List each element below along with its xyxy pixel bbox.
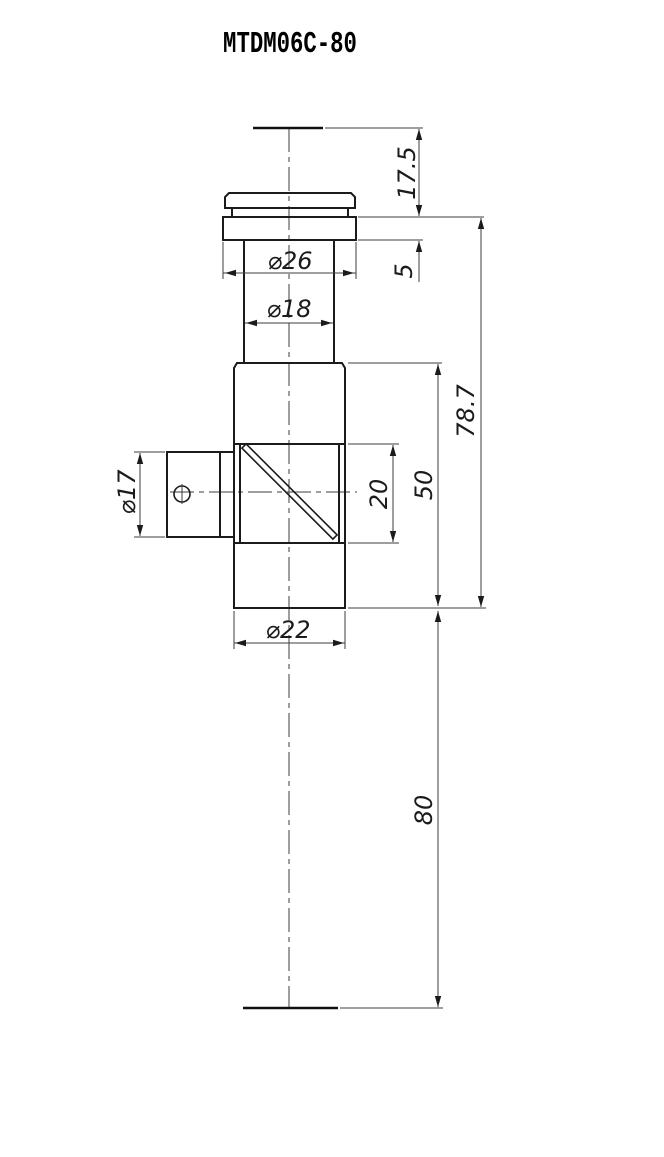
arrow-up-icon xyxy=(478,218,484,229)
dim-label-d18: ⌀18 xyxy=(267,295,312,323)
arrow-left-icon xyxy=(246,320,257,326)
arrow-down-icon xyxy=(416,205,422,216)
dim-label-d22: ⌀22 xyxy=(266,616,311,644)
dimension-window-height: 20 xyxy=(365,445,396,542)
arrow-right-icon xyxy=(321,320,332,326)
dimension-block-diameter: ⌀22 xyxy=(234,616,345,646)
dim-label-d17: ⌀17 xyxy=(113,469,141,515)
arrow-down-icon xyxy=(137,525,143,536)
dim-label-78-7: 78.7 xyxy=(452,384,480,438)
arrow-up-icon xyxy=(435,364,441,375)
arrow-left-icon xyxy=(225,270,236,276)
dimension-top-section-height: 17.5 xyxy=(393,129,422,216)
dim-label-80: 80 xyxy=(410,795,438,826)
arrow-up-icon xyxy=(416,129,422,140)
cap-neck xyxy=(232,208,348,217)
technical-drawing: MTDM06C-80 xyxy=(0,0,664,1157)
arrow-right-icon xyxy=(343,270,354,276)
retaining-cap xyxy=(225,193,355,208)
arrow-up-icon xyxy=(416,241,422,252)
title-block: MTDM06C-80 xyxy=(223,28,357,62)
side-port xyxy=(167,452,234,537)
dim-label-20: 20 xyxy=(365,479,393,510)
arrow-right-icon xyxy=(333,640,344,646)
dimension-block-height: 50 xyxy=(410,364,441,606)
arrow-down-icon xyxy=(435,595,441,606)
dimension-overall-body-height: 78.7 xyxy=(452,218,484,607)
dim-label-17-5: 17.5 xyxy=(393,146,421,199)
arrow-up-icon xyxy=(435,611,441,622)
dimension-side-port-diameter: ⌀17 xyxy=(113,453,143,536)
drawing-title: MTDM06C-80 xyxy=(223,28,357,62)
arrow-left-icon xyxy=(235,640,246,646)
dimension-flange-thickness: 5 xyxy=(390,241,422,282)
dim-label-5: 5 xyxy=(390,263,418,278)
dimension-upper-body-diameter: ⌀18 xyxy=(245,295,333,326)
arrow-up-icon xyxy=(390,445,396,456)
arrow-down-icon xyxy=(390,531,396,542)
dim-label-d26: ⌀26 xyxy=(268,247,313,275)
drawing-sheet: MTDM06C-80 xyxy=(0,0,664,1157)
centerlines xyxy=(170,128,357,1008)
dimension-flange-diameter: ⌀26 xyxy=(223,247,356,276)
dimension-lower-extension-length: 80 xyxy=(410,611,441,1007)
arrow-down-icon xyxy=(435,996,441,1007)
arrow-up-icon xyxy=(137,453,143,464)
dim-label-50: 50 xyxy=(410,470,438,501)
arrow-down-icon xyxy=(478,596,484,607)
part-view xyxy=(167,128,356,1008)
